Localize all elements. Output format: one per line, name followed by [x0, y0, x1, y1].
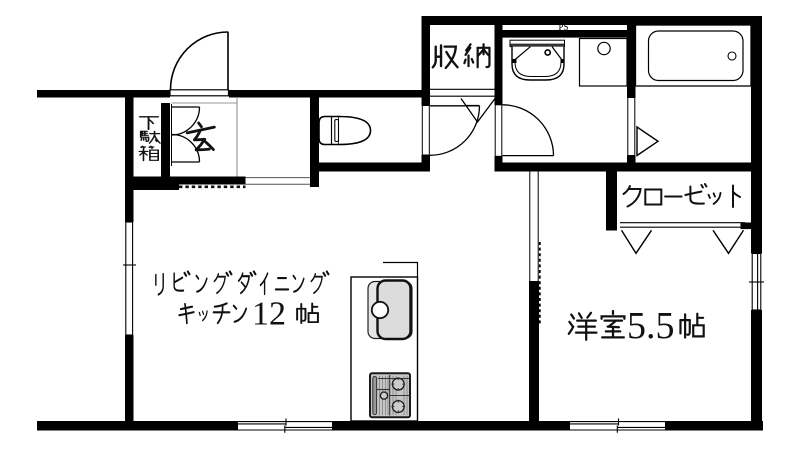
- svg-text:5.5: 5.5: [627, 305, 675, 347]
- svg-text:12: 12: [252, 296, 286, 333]
- svg-text:PS: PS: [558, 22, 568, 32]
